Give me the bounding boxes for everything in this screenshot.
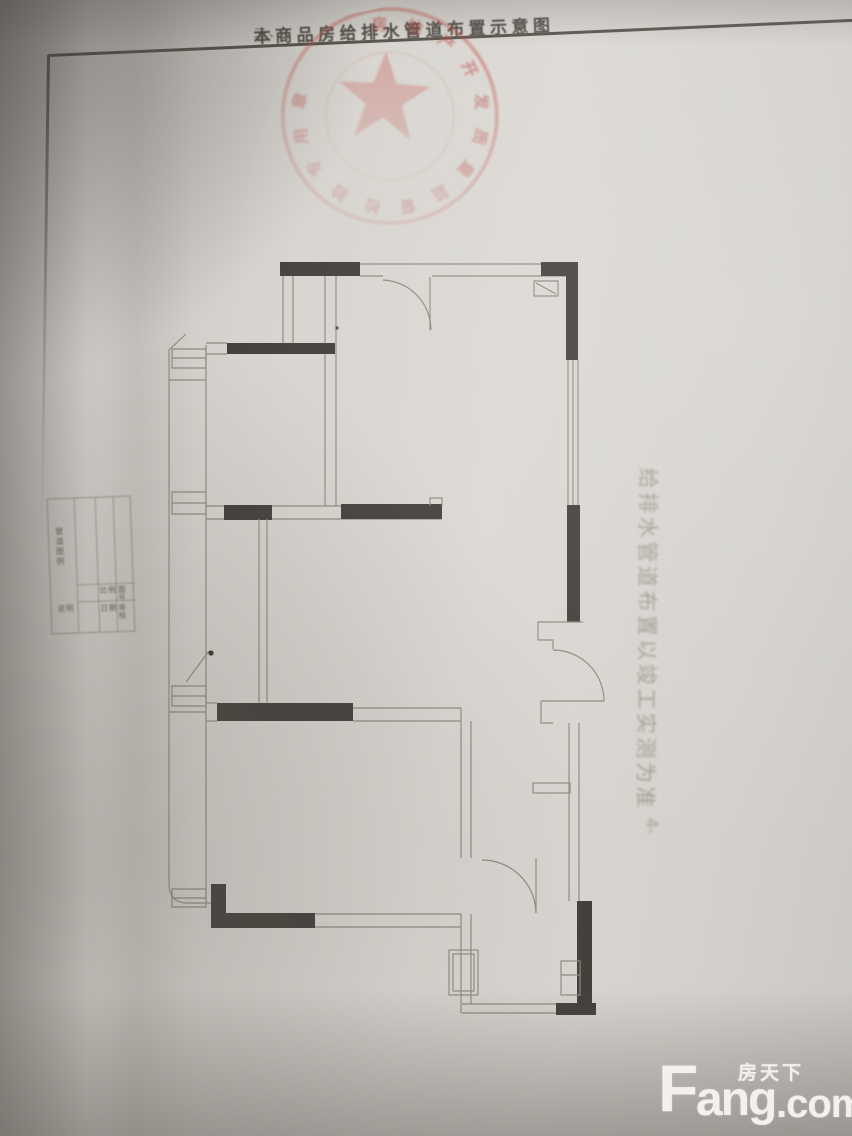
interior-walls	[206, 498, 471, 858]
bottom-left-walls	[211, 884, 461, 928]
table-cell: 比例	[100, 586, 117, 595]
watermark-fangcom: 房天下 F ang .com	[658, 1056, 852, 1136]
table-label: 管道图例	[55, 527, 64, 567]
top-right-corner	[534, 262, 578, 360]
door-arc-entry	[553, 650, 604, 701]
table-cell: 日期	[100, 604, 117, 613]
door-arc-top	[383, 280, 431, 330]
red-star-icon	[335, 44, 440, 151]
window-tick	[534, 281, 558, 296]
watermark-ang: ang	[696, 1072, 775, 1127]
shelf	[533, 783, 570, 793]
top-wall-and-door	[360, 264, 567, 330]
table-divider	[95, 498, 101, 632]
balcony-strip	[169, 334, 212, 907]
speck	[335, 326, 338, 329]
side-annotation: 给排水管道布置以竣工实测为准	[631, 468, 664, 811]
table-cell: 图号	[118, 586, 134, 603]
floor-plan-drawing	[140, 240, 620, 1040]
table-cell: 说明	[57, 605, 74, 614]
title-block-table: 管道图例 比例 图号 说明 日期 审核	[47, 496, 136, 635]
side-annotation-suffix: 4-	[641, 818, 662, 834]
door-arc-bath	[482, 860, 536, 913]
bathroom	[449, 858, 596, 1015]
photo-of-floorplan-document: 管道图例 比例 图号 说明 日期 审核 二、本商品房给排水管道布置示意图 房地产…	[0, 0, 852, 1136]
right-wall	[533, 360, 604, 1013]
watermark-letter-f: F	[658, 1050, 698, 1126]
official-seal: 房地产开发质量监督检验专用章	[255, 0, 525, 248]
entry-niche	[538, 622, 583, 649]
kitchen-walls	[206, 262, 360, 506]
table-cell: 审核	[118, 604, 134, 621]
watermark-dotcom: .com	[776, 1082, 852, 1127]
door-symbol-left	[186, 650, 214, 682]
